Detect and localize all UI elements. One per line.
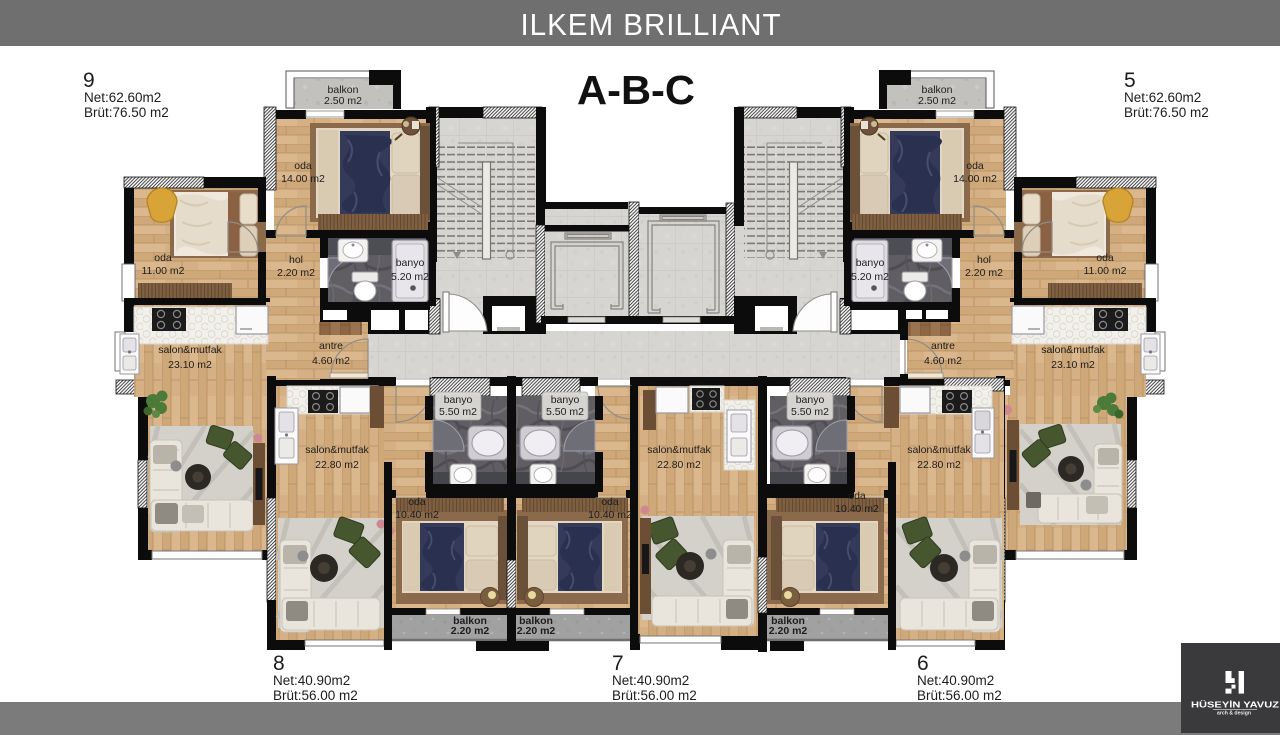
svg-text:Net:40.90m2: Net:40.90m2 [273, 673, 350, 688]
svg-text:Brüt:76.50 m2: Brüt:76.50 m2 [1124, 105, 1209, 120]
svg-text:2.20 m2: 2.20 m2 [965, 267, 1003, 279]
svg-text:Net:40.90m2: Net:40.90m2 [612, 673, 689, 688]
svg-text:22.80 m2: 22.80 m2 [315, 459, 359, 471]
svg-text:14.00 m2: 14.00 m2 [953, 173, 997, 185]
svg-text:5.20 m2: 5.20 m2 [851, 271, 889, 283]
svg-text:5: 5 [1124, 69, 1136, 92]
svg-text:banyo: banyo [444, 394, 473, 406]
svg-text:HÜSEYİN YAVUZ: HÜSEYİN YAVUZ [1191, 700, 1279, 710]
svg-text:Brüt:76.50 m2: Brüt:76.50 m2 [84, 105, 169, 120]
svg-text:A-B-C: A-B-C [577, 67, 695, 113]
svg-text:Brüt:56.00 m2: Brüt:56.00 m2 [612, 688, 697, 703]
svg-text:10.40 m2: 10.40 m2 [588, 509, 632, 521]
svg-text:23.10 m2: 23.10 m2 [1051, 359, 1095, 371]
svg-text:4.60 m2: 4.60 m2 [924, 355, 962, 367]
svg-text:22.80 m2: 22.80 m2 [917, 459, 961, 471]
svg-text:9: 9 [83, 69, 95, 92]
svg-text:antre: antre [319, 340, 343, 352]
svg-text:ILKEM BRILLIANT: ILKEM BRILLIANT [521, 7, 782, 42]
svg-text:2.50 m2: 2.50 m2 [918, 95, 956, 107]
svg-text:salon&mutfak: salon&mutfak [907, 444, 971, 456]
svg-text:7: 7 [612, 652, 624, 675]
svg-text:salon&mutfak: salon&mutfak [305, 444, 369, 456]
svg-text:2.20 m2: 2.20 m2 [451, 625, 490, 637]
svg-text:5.50 m2: 5.50 m2 [791, 406, 829, 418]
svg-text:Brüt:56.00 m2: Brüt:56.00 m2 [273, 688, 358, 703]
svg-text:Net:40.90m2: Net:40.90m2 [917, 673, 994, 688]
svg-text:14.00 m2: 14.00 m2 [281, 173, 325, 185]
svg-text:23.10 m2: 23.10 m2 [168, 359, 212, 371]
svg-text:salon&mutfak: salon&mutfak [1041, 344, 1105, 356]
svg-text:salon&mutfak: salon&mutfak [158, 344, 222, 356]
svg-text:arch & design: arch & design [1217, 711, 1252, 717]
svg-text:oda: oda [408, 496, 426, 508]
svg-text:2.20 m2: 2.20 m2 [517, 625, 556, 637]
svg-text:Net:62.60m2: Net:62.60m2 [1124, 90, 1201, 105]
svg-text:oda: oda [1096, 252, 1114, 264]
svg-text:8: 8 [273, 652, 285, 675]
svg-text:2.20 m2: 2.20 m2 [769, 625, 808, 637]
svg-text:5.50 m2: 5.50 m2 [439, 406, 477, 418]
svg-text:4.60 m2: 4.60 m2 [312, 355, 350, 367]
svg-text:Brüt:56.00 m2: Brüt:56.00 m2 [917, 688, 1002, 703]
svg-text:hol: hol [977, 254, 991, 266]
svg-text:Net:62.60m2: Net:62.60m2 [84, 90, 161, 105]
svg-text:2.50 m2: 2.50 m2 [324, 95, 362, 107]
svg-text:5.20 m2: 5.20 m2 [391, 271, 429, 283]
svg-text:11.00 m2: 11.00 m2 [1084, 265, 1127, 277]
svg-text:hol: hol [289, 254, 303, 266]
svg-text:2.20 m2: 2.20 m2 [277, 267, 315, 279]
svg-text:salon&mutfak: salon&mutfak [647, 444, 711, 456]
svg-text:banyo: banyo [396, 257, 425, 269]
svg-text:22.80 m2: 22.80 m2 [657, 459, 701, 471]
svg-text:banyo: banyo [551, 394, 580, 406]
svg-text:oda: oda [154, 252, 172, 264]
svg-text:oda: oda [294, 160, 312, 172]
svg-text:banyo: banyo [856, 257, 885, 269]
svg-text:5.50 m2: 5.50 m2 [546, 406, 584, 418]
svg-text:oda: oda [966, 160, 984, 172]
svg-text:oda: oda [848, 490, 866, 502]
svg-text:10.40 m2: 10.40 m2 [835, 503, 879, 515]
svg-text:10.40 m2: 10.40 m2 [395, 509, 439, 521]
svg-text:6: 6 [917, 652, 929, 675]
svg-text:oda: oda [601, 496, 619, 508]
svg-text:banyo: banyo [796, 394, 825, 406]
svg-text:11.00 m2: 11.00 m2 [142, 265, 185, 277]
svg-text:antre: antre [931, 340, 955, 352]
